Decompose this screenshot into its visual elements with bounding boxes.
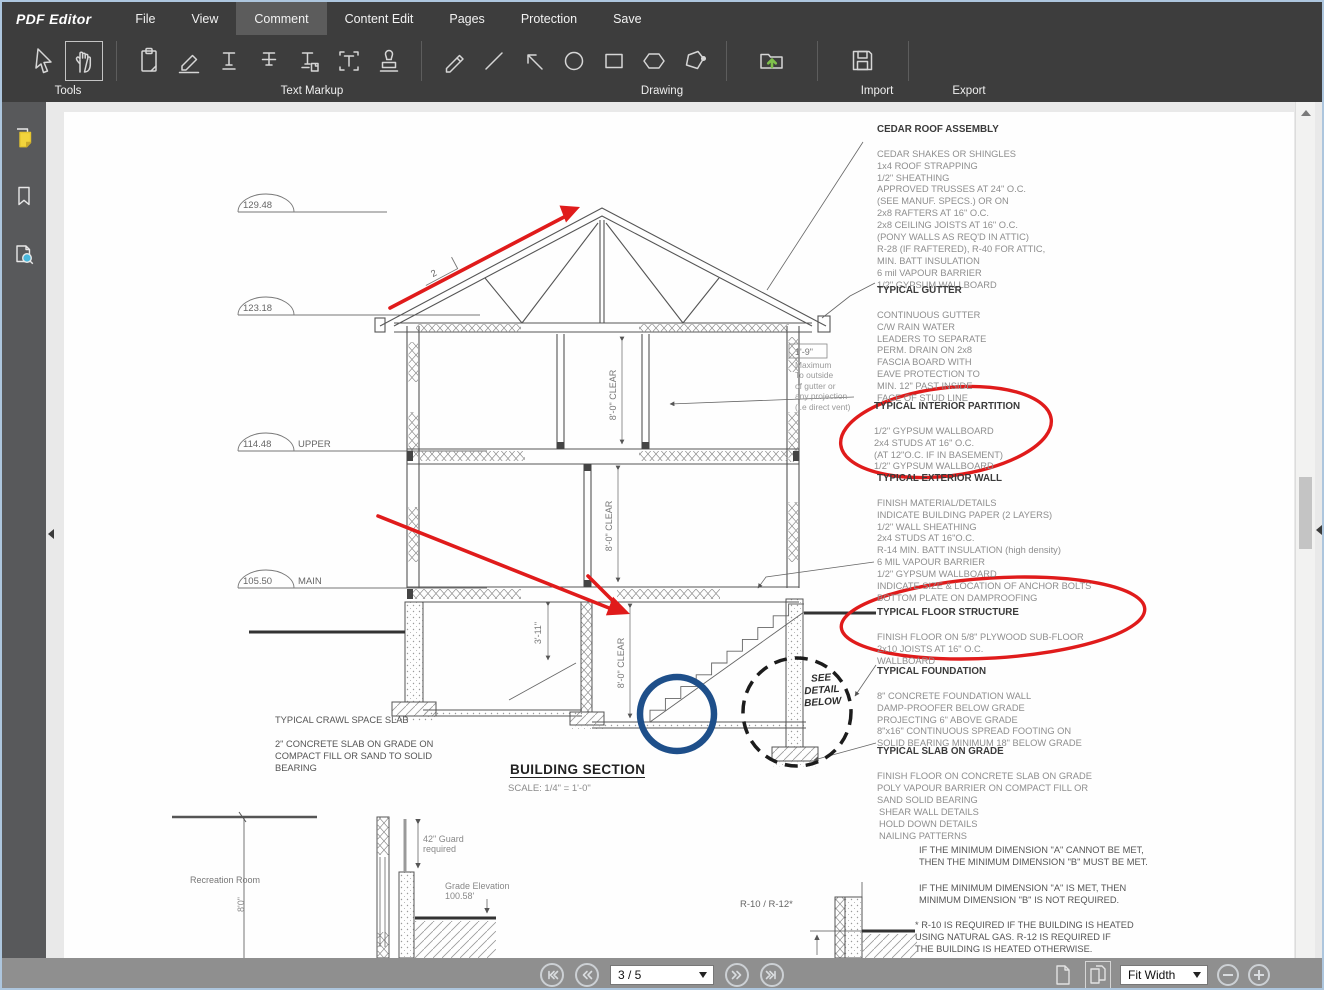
menu-protection[interactable]: Protection <box>503 2 595 35</box>
menu-file[interactable]: File <box>117 2 173 35</box>
menu-view[interactable]: View <box>174 2 237 35</box>
main-floor-label: MAIN <box>298 576 322 587</box>
scroll-up-arrow[interactable] <box>1301 110 1311 116</box>
toolbar-separator <box>908 41 909 81</box>
spec-title: TYPICAL INTERIOR PARTITION <box>874 401 1020 413</box>
toolbar-separator <box>726 41 727 81</box>
drawing-group-label: Drawing <box>617 85 707 97</box>
elevation-114: 114.48 <box>243 439 271 450</box>
toolbar-separator <box>421 41 422 81</box>
roof-slope-value: 2 <box>429 268 439 280</box>
pdf-editor-window: PDF Editor File View Comment Content Edi… <box>0 0 1324 990</box>
spec-title: TYPICAL FLOOR STRUCTURE <box>877 607 1084 619</box>
line-icon[interactable] <box>475 41 513 81</box>
chevron-down-icon <box>1193 972 1201 978</box>
export-group-label: Export <box>934 85 1004 97</box>
text-markup-group-label: Text Markup <box>257 85 367 97</box>
grade-elevation-label: Grade Elevation 100.58' <box>445 881 510 901</box>
crawl-space-note: TYPICAL CRAWL SPACE SLAB 2" CONCRETE SLA… <box>275 703 433 786</box>
drawing-scale: SCALE: 1/4" = 1'-0" <box>508 783 591 794</box>
first-page-button[interactable] <box>540 963 564 987</box>
pencil-icon[interactable] <box>435 41 473 81</box>
select-cursor-icon[interactable] <box>25 41 63 81</box>
comment-note-icon[interactable] <box>2 116 46 160</box>
import-folder-icon[interactable] <box>753 41 791 81</box>
see-detail-label: SEE DETAIL BELOW <box>796 671 848 710</box>
stamp-icon[interactable] <box>370 41 408 81</box>
dim-stair-clear: 8'-0" CLEAR <box>616 637 626 688</box>
export-disk-icon[interactable] <box>844 41 882 81</box>
last-page-button[interactable] <box>760 963 784 987</box>
pdf-page[interactable]: 129.48 123.18 114.48 UPPER 105.50 MAIN <box>64 112 1294 958</box>
page-search-icon[interactable] <box>2 232 46 276</box>
dim-basement: 3'-11" <box>533 622 543 644</box>
next-page-button[interactable] <box>725 963 749 987</box>
toolbar-separator <box>817 41 818 81</box>
crawl-body: 2" CONCRETE SLAB ON GRADE ON COMPACT FIL… <box>275 739 433 775</box>
vertical-scrollbar[interactable] <box>1295 102 1315 958</box>
tools-group-label: Tools <box>38 85 98 97</box>
text-underline-icon[interactable] <box>210 41 248 81</box>
zoom-in-button[interactable] <box>1248 964 1270 986</box>
note-tool-icon[interactable] <box>130 41 168 81</box>
hand-pan-icon[interactable] <box>65 41 103 81</box>
toolbar: Tools Text Markup Drawing Import Export <box>2 35 1322 102</box>
note-r10-r12: * R-10 IS REQUIRED IF THE BUILDING IS HE… <box>915 920 1134 956</box>
text-box-icon[interactable] <box>330 41 368 81</box>
menu-save[interactable]: Save <box>595 2 660 35</box>
collapse-right-panel-arrow[interactable] <box>1316 525 1322 535</box>
app-title: PDF Editor <box>16 11 91 27</box>
page-indicator: 3 / 5 <box>618 968 641 982</box>
single-page-view-icon[interactable] <box>1050 961 1076 989</box>
zoom-mode-label: Fit Width <box>1128 968 1175 982</box>
elevation-123: 123.18 <box>243 303 272 314</box>
text-insert-icon[interactable] <box>290 41 328 81</box>
elevation-markers <box>238 194 487 588</box>
hexagon-icon[interactable] <box>635 41 673 81</box>
menu-pages[interactable]: Pages <box>431 2 502 35</box>
import-group-label: Import <box>842 85 912 97</box>
drawing-title: BUILDING SECTION <box>510 762 645 778</box>
dim-main-clear: 8'-0" CLEAR <box>604 500 614 551</box>
dim-upper-clear: 8'-0" CLEAR <box>608 369 618 420</box>
spec-title: TYPICAL FOUNDATION <box>877 666 1082 678</box>
building-section-drawing: 129.48 123.18 114.48 UPPER 105.50 MAIN <box>64 112 1294 958</box>
bookmark-icon[interactable] <box>2 174 46 218</box>
guard-label: 42" Guard required <box>423 834 464 854</box>
previous-page-button[interactable] <box>575 963 599 987</box>
elevation-105: 105.50 <box>243 576 272 587</box>
collapse-left-panel-arrow[interactable] <box>48 529 54 539</box>
spec-body: CEDAR SHAKES OR SHINGLES 1x4 ROOF STRAPP… <box>877 149 1045 292</box>
polygon-icon[interactable] <box>675 41 713 81</box>
spec-title: TYPICAL GUTTER <box>877 285 986 297</box>
ellipse-icon[interactable] <box>555 41 593 81</box>
menu-content-edit[interactable]: Content Edit <box>327 2 432 35</box>
arrow-icon[interactable] <box>515 41 553 81</box>
status-bar: 3 / 5 Fit Width <box>2 958 1322 990</box>
spec-title: CEDAR ROOF ASSEMBLY <box>877 124 1045 136</box>
elevation-129: 129.48 <box>243 200 272 211</box>
chevron-down-icon <box>699 972 707 978</box>
upper-floor-label: UPPER <box>298 439 331 450</box>
wall-section <box>407 326 799 602</box>
roof-truss <box>375 208 830 332</box>
side-panel-bar <box>2 102 46 958</box>
stairs <box>650 604 804 722</box>
menu-comment[interactable]: Comment <box>236 2 326 35</box>
recreation-room-label: Recreation Room <box>190 875 260 885</box>
scrollbar-thumb[interactable] <box>1299 477 1312 549</box>
zoom-out-button[interactable] <box>1217 964 1239 986</box>
blue-circle-annotation[interactable] <box>640 677 714 751</box>
note-dimension-a-met: IF THE MINIMUM DIMENSION "A" IS MET, THE… <box>919 883 1126 907</box>
note-dimension-a-cannot: IF THE MINIMUM DIMENSION "A" CANNOT BE M… <box>919 845 1148 869</box>
gutter-max-note: Maximum To outside of gutter or any proj… <box>795 360 865 412</box>
spec-title: TYPICAL SLAB ON GRADE <box>877 746 1092 758</box>
menu-bar: PDF Editor File View Comment Content Edi… <box>2 2 1322 35</box>
spec-body: SHEAR WALL DETAILS HOLD DOWN DETAILS NAI… <box>879 807 979 843</box>
r-value-label: R-10 / R-12* <box>740 899 793 910</box>
spec-title: TYPICAL EXTERIOR WALL <box>877 473 1091 485</box>
spec-exterior-wall: TYPICAL EXTERIOR WALL FINISH MATERIAL/DE… <box>877 461 1091 617</box>
zoom-select[interactable]: Fit Width <box>1120 965 1208 985</box>
dim-gutter: 1'-9" <box>795 347 813 357</box>
spec-body: FINISH MATERIAL/DETAILS INDICATE BUILDIN… <box>877 498 1091 605</box>
crawl-title: TYPICAL CRAWL SPACE SLAB <box>275 715 433 727</box>
toolbar-separator <box>116 41 117 81</box>
bottom-details <box>172 812 917 958</box>
page-select[interactable]: 3 / 5 <box>610 965 714 985</box>
continuous-page-view-icon[interactable] <box>1085 961 1111 989</box>
highlighter-icon[interactable] <box>170 41 208 81</box>
rectangle-icon[interactable] <box>595 41 633 81</box>
text-strikeout-icon[interactable] <box>250 41 288 81</box>
rec-height-dim: 8'0" <box>236 897 246 912</box>
